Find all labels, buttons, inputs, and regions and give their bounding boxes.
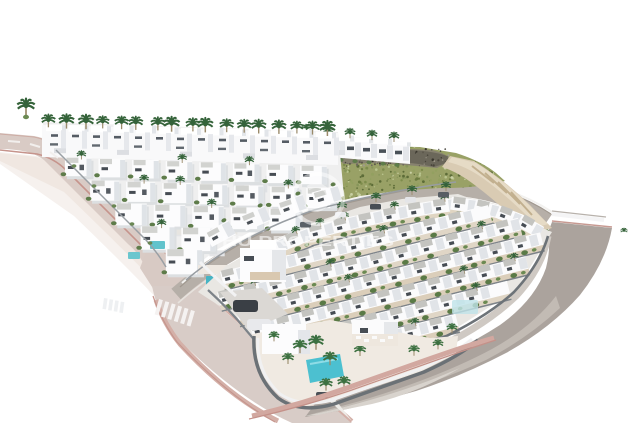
svg-text:HU PROPERTIES: HU PROPERTIES bbox=[222, 233, 394, 250]
